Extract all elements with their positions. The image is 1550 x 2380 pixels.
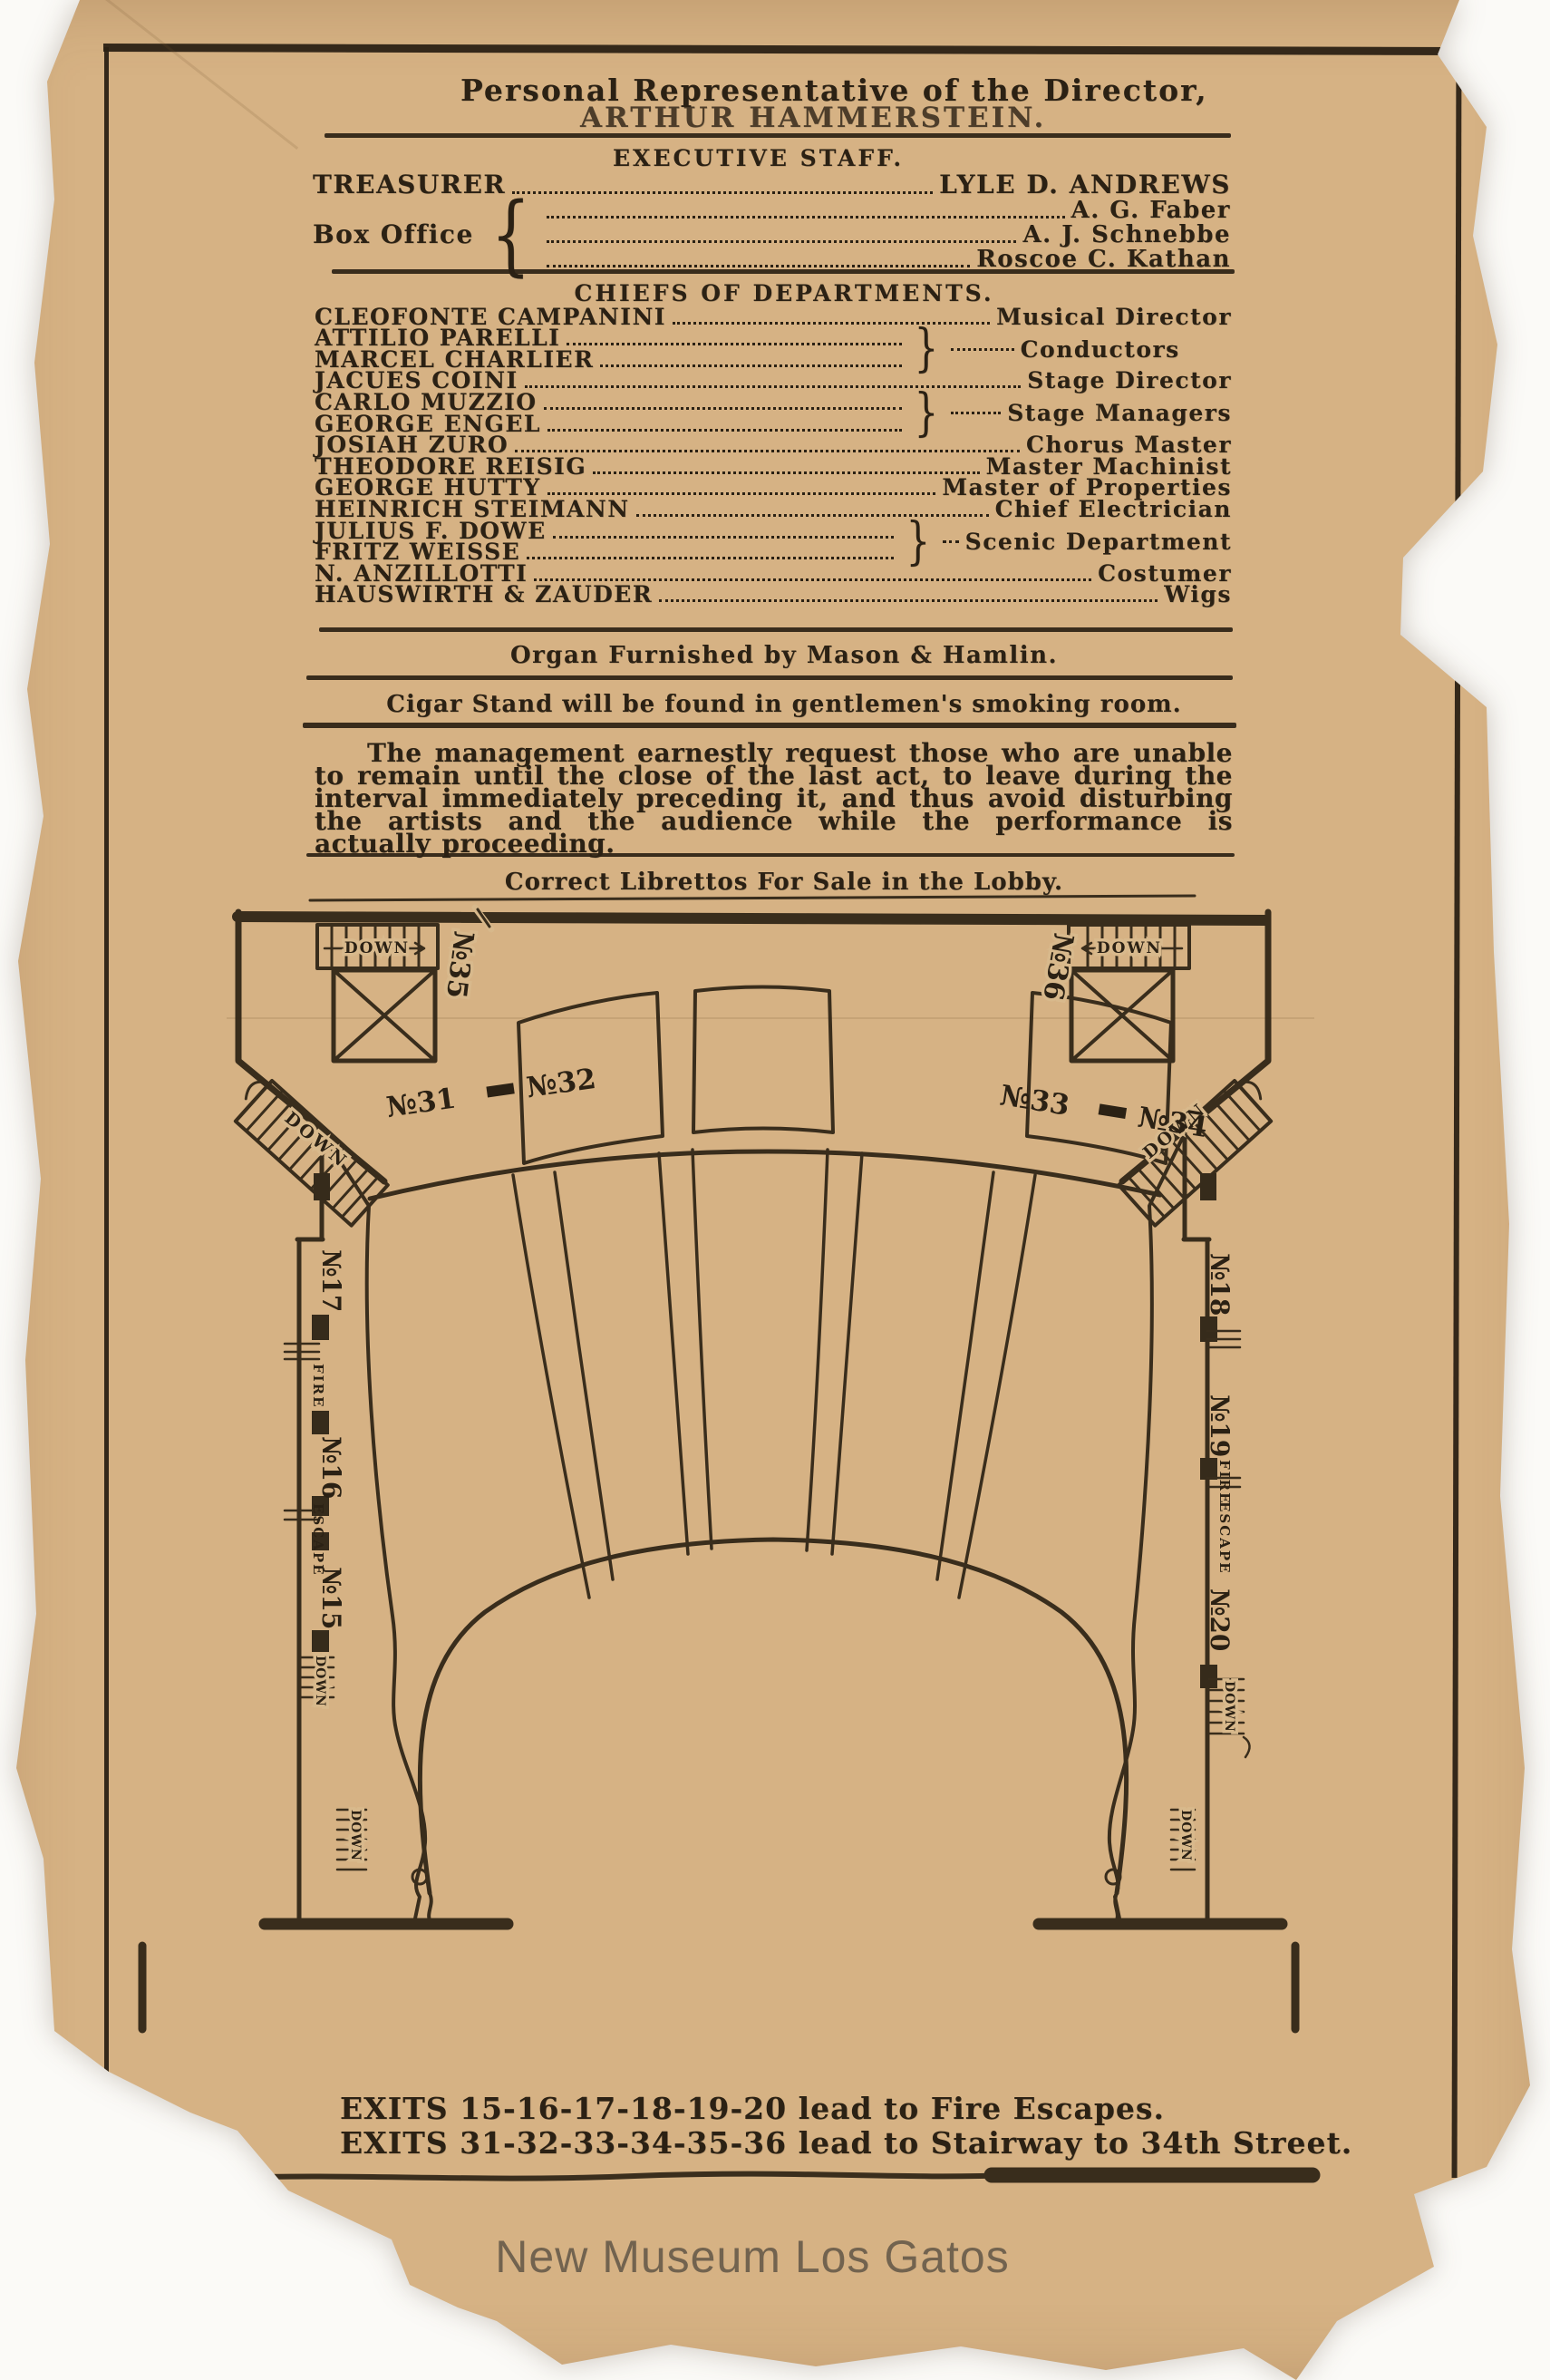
label-down-left-upper: DOWN [313, 1656, 327, 1707]
balcony-rail-arc [370, 1151, 1160, 1199]
label-down-right-lower: DOWN [1178, 1810, 1193, 1861]
label-separator [486, 1083, 514, 1097]
label-no16: №16 [316, 1436, 346, 1499]
label-no31: №31 [384, 1083, 458, 1124]
aisle-lines [513, 1150, 1035, 1598]
exit-wall-right [1171, 1133, 1250, 1924]
label-down-right-upper: DOWN [1222, 1681, 1236, 1733]
plan-corner-right [1069, 912, 1280, 1226]
label-down-top-right: DOWN [1097, 939, 1162, 957]
box-center [693, 987, 833, 1133]
label-down-top-left: DOWN [344, 939, 410, 957]
seating-plan: DOWN DOWN №35 №31 №32 DOWN DOWN №36 №33 … [0, 0, 1550, 2380]
balcony-front-horseshoe [420, 1540, 1126, 1893]
label-no17: №17 [316, 1249, 346, 1312]
plan-rear-wall [237, 917, 1265, 920]
elevator-right-icon [1071, 970, 1173, 1061]
label-fire-left: FIRE [310, 1364, 326, 1409]
paper-sheet: Personal Representative of the Director,… [0, 0, 1550, 2380]
label-fire-right: FIRE [1216, 1460, 1233, 1505]
plan-corner-left [227, 912, 438, 1226]
label-escape-right: ESCAPE [1216, 1501, 1233, 1575]
label-exits-33-34: №33 №34 [998, 1079, 1210, 1144]
stairs-diagonal-left-icon [227, 1073, 388, 1226]
label-no32: №32 [525, 1063, 598, 1104]
label-no19: №19 [1205, 1394, 1235, 1457]
box-right [1027, 993, 1171, 1163]
label-no35: №35 [440, 929, 480, 1000]
label-no33: №33 [998, 1079, 1072, 1122]
label-exits-31-32: №31 №32 [384, 1063, 598, 1124]
label-no18: №18 [1205, 1253, 1235, 1316]
exits-line1: EXITS 15-16-17-18-19-20 lead to Fire Esc… [340, 2091, 1165, 2126]
seating-flanks [322, 1133, 1185, 1919]
scanned-page: Personal Representative of the Director,… [0, 0, 1550, 2380]
elevator-left-icon [334, 970, 435, 1061]
label-separator [1099, 1103, 1128, 1119]
label-down-left-lower: DOWN [348, 1810, 363, 1861]
exits-line2: EXITS 31-32-33-34-35-36 lead to Stairway… [340, 2125, 1352, 2161]
label-no20: №20 [1205, 1588, 1235, 1651]
label-escape-left: ESCAPE [310, 1503, 326, 1577]
plan-rear-wall-inner [310, 896, 1195, 900]
label-no15: №15 [316, 1567, 346, 1629]
museum-watermark: New Museum Los Gatos [0, 2230, 1505, 2283]
